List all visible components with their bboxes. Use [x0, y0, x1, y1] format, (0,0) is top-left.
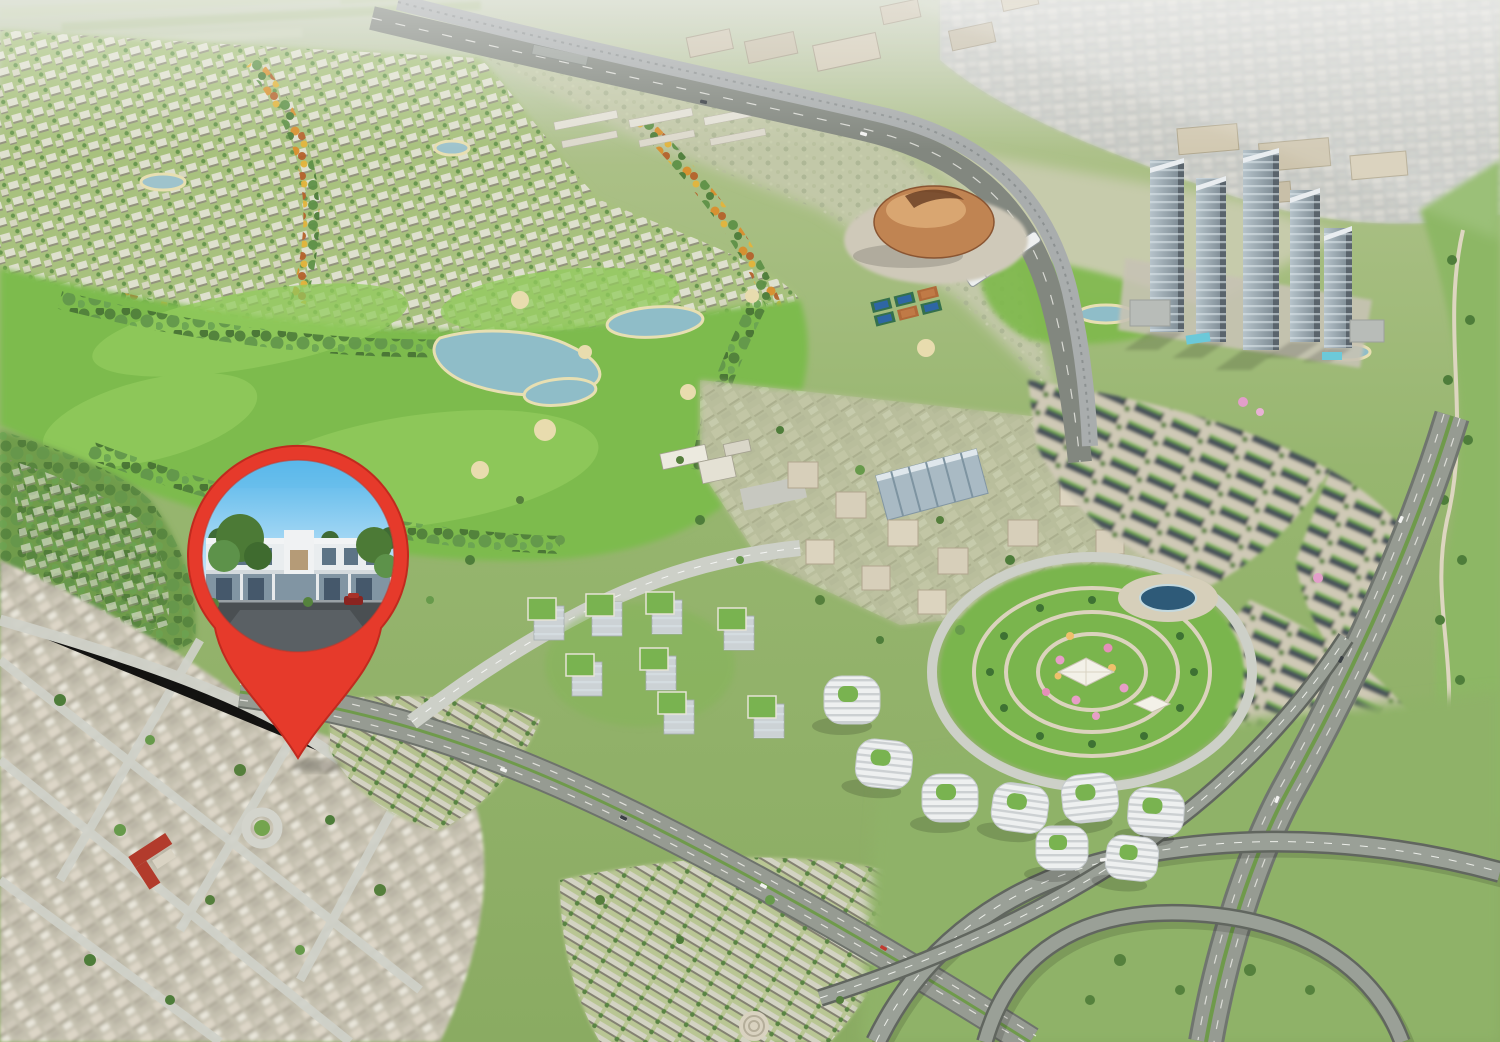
park-pond: [1118, 574, 1218, 622]
aerial-map: [0, 0, 1500, 1042]
circular-park: [940, 564, 1244, 780]
rooftop-pool: [1322, 352, 1342, 360]
aerial-scene: [0, 0, 1500, 1042]
amphitheatre: [739, 1011, 769, 1041]
photo-wood-accent: [290, 550, 308, 570]
podium-block: [1350, 320, 1384, 342]
pin-shadow: [292, 759, 344, 773]
podium-block: [1130, 300, 1170, 326]
